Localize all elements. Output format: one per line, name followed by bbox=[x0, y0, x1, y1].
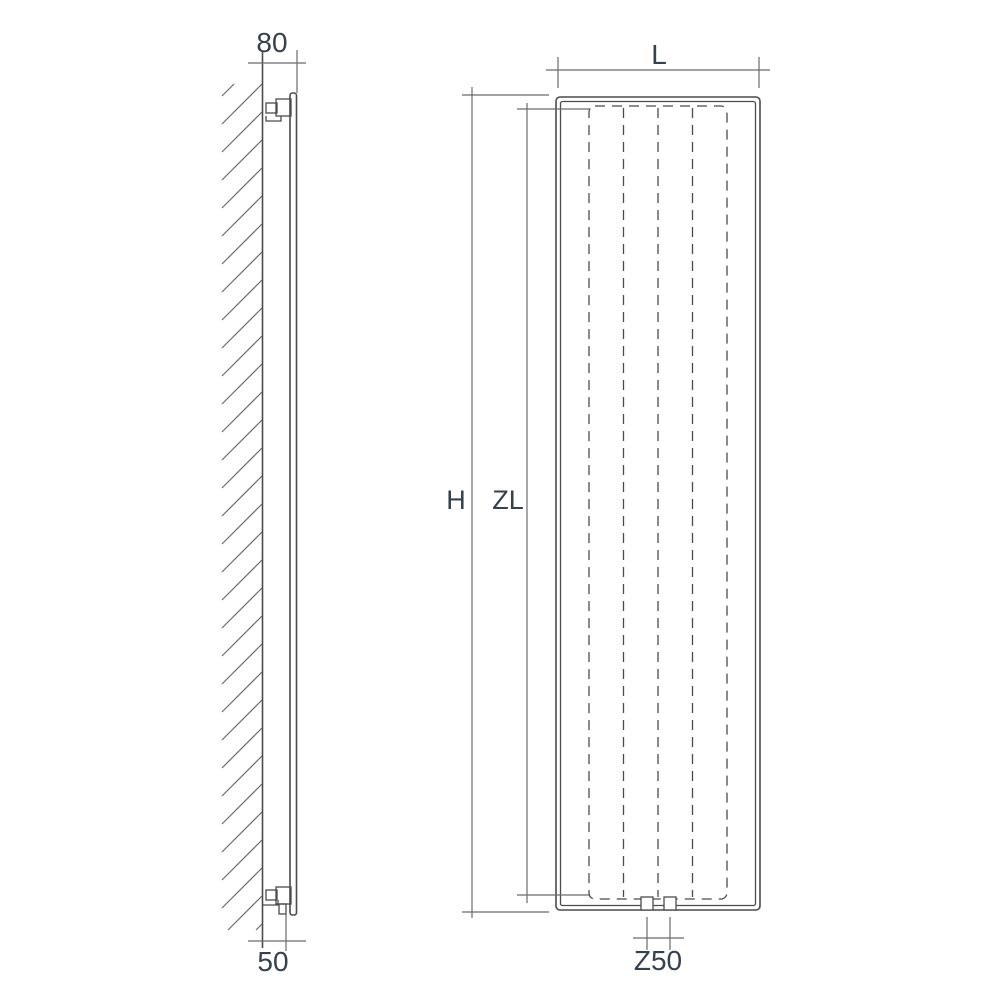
connector-left bbox=[641, 897, 653, 910]
connector-right bbox=[664, 897, 676, 910]
connection-spacing-dimension-label: Z50 bbox=[634, 945, 682, 976]
fin-height-dimension-label: ZL bbox=[492, 485, 524, 515]
pipe-offset-dimension-label: 50 bbox=[257, 946, 288, 977]
dimension-depth: 80 bbox=[248, 27, 306, 93]
dimension-connection-spacing: Z50 bbox=[633, 917, 684, 976]
front-view: L H ZL Z50 bbox=[446, 39, 770, 976]
height-dimension-label: H bbox=[446, 485, 466, 515]
wall-hatch bbox=[222, 84, 262, 930]
dimension-width: L bbox=[546, 39, 770, 88]
dimension-pipe-offset: 50 bbox=[248, 914, 306, 977]
bottom-mounting-bracket bbox=[262, 887, 291, 914]
diagram-canvas: 80 50 L bbox=[0, 0, 1000, 1000]
bracket-arm bbox=[276, 99, 291, 116]
radiator-dimension-diagram: 80 50 L bbox=[0, 0, 1000, 1000]
hatch-line bbox=[256, 924, 262, 930]
width-dimension-label: L bbox=[651, 39, 667, 70]
dimension-fin-height: ZL bbox=[492, 103, 589, 903]
hatch-line bbox=[222, 84, 234, 96]
side-view: 80 50 bbox=[222, 27, 306, 977]
fin-pack bbox=[589, 106, 727, 899]
pipe-stub bbox=[279, 904, 286, 914]
hatch-line bbox=[228, 896, 262, 930]
side-panel bbox=[290, 93, 297, 915]
depth-dimension-label: 80 bbox=[256, 27, 287, 58]
bracket-hook bbox=[266, 116, 281, 121]
top-mounting-bracket bbox=[266, 99, 291, 121]
